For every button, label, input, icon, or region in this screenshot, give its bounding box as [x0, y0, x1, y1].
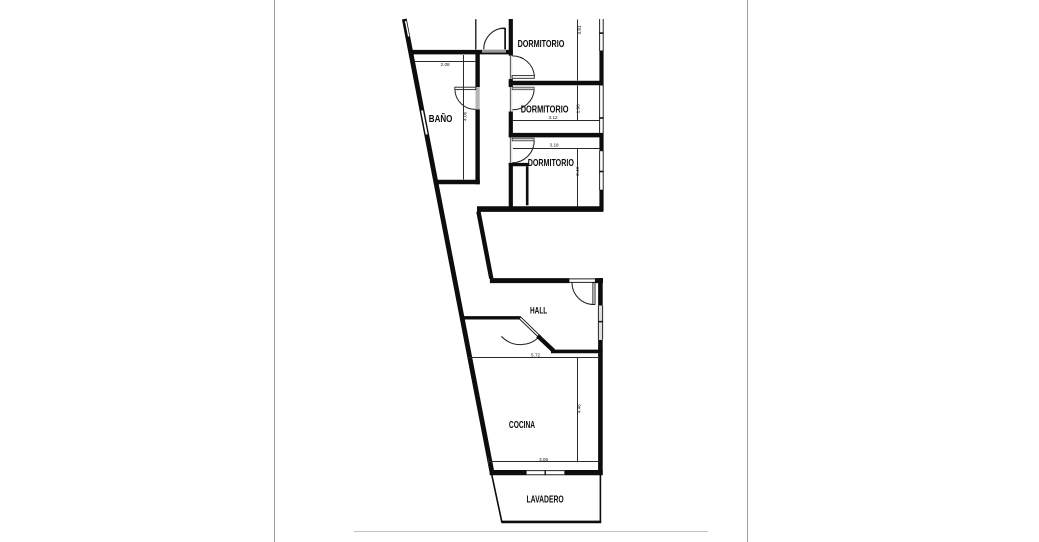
svg-text:2.40: 2.40: [575, 166, 580, 176]
svg-text:2.08: 2.08: [441, 62, 451, 67]
svg-text:3.06: 3.06: [539, 457, 549, 462]
svg-text:5.72: 5.72: [531, 353, 541, 358]
svg-text:4.46: 4.46: [576, 404, 581, 414]
svg-text:BAÑO: BAÑO: [429, 112, 453, 125]
svg-text:3.81: 3.81: [577, 25, 582, 35]
svg-text:COCINA: COCINA: [509, 420, 535, 431]
svg-text:4.06: 4.06: [463, 111, 468, 121]
svg-text:3.12: 3.12: [549, 115, 559, 120]
svg-text:DORMITORIO: DORMITORIO: [528, 158, 574, 169]
svg-text:1.96: 1.96: [576, 104, 581, 114]
svg-text:LAVADERO: LAVADERO: [527, 495, 564, 506]
svg-text:3.18: 3.18: [550, 143, 560, 148]
svg-text:DORMITORIO: DORMITORIO: [521, 105, 569, 116]
svg-text:HALL: HALL: [530, 305, 548, 315]
svg-text:DORMITORIO: DORMITORIO: [518, 39, 565, 50]
